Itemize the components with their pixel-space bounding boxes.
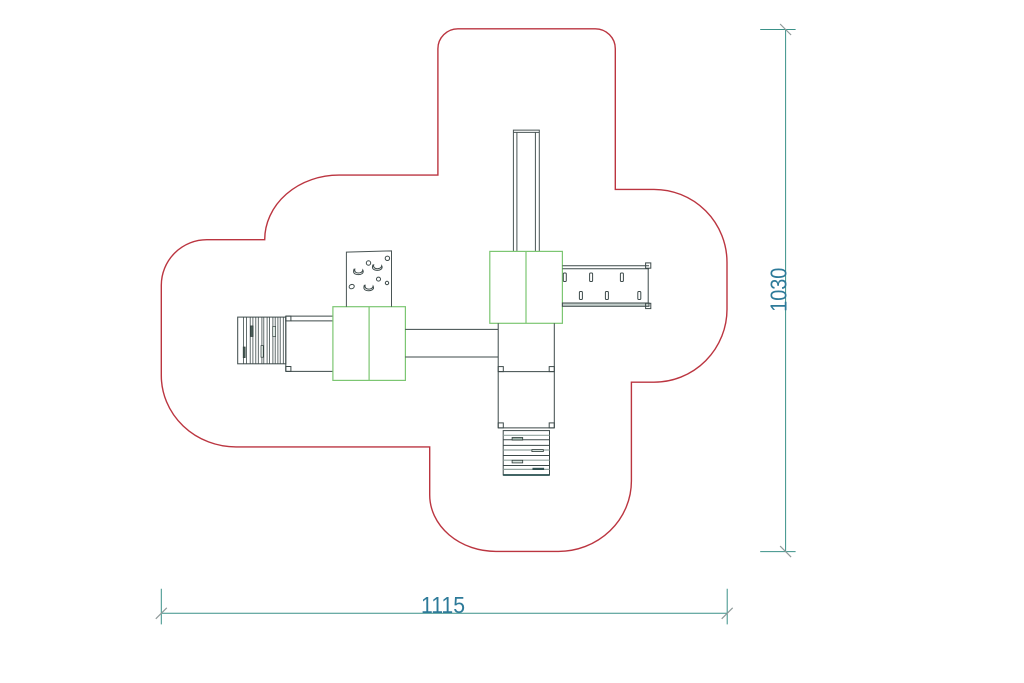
- svg-text:1115: 1115: [421, 592, 465, 618]
- svg-text:1030: 1030: [765, 268, 791, 312]
